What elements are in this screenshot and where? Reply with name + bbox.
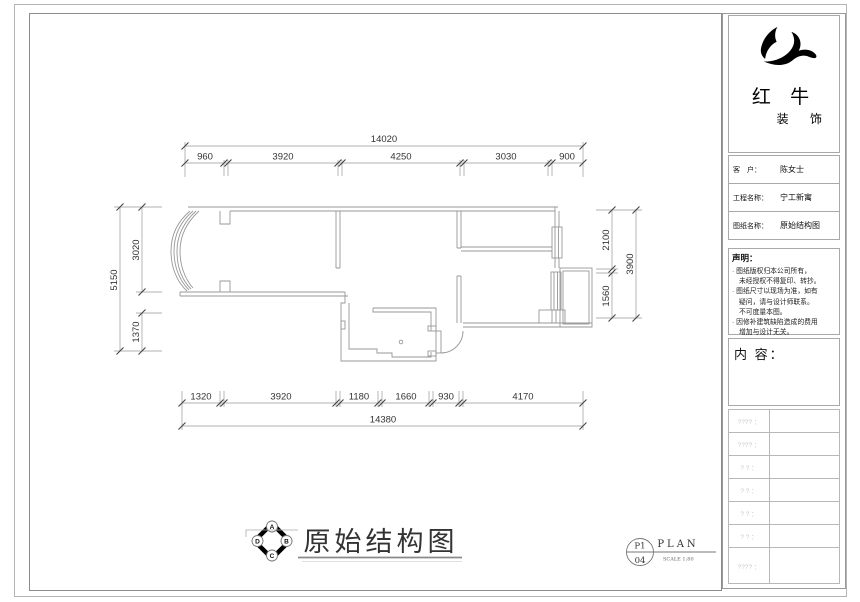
project-name-row: 工程名称： 宁工新寓 bbox=[728, 183, 840, 212]
sheet-number-bottom: 04 bbox=[635, 556, 646, 566]
signature-row: ???? ： bbox=[728, 547, 840, 584]
company-logo-section: 红 牛 装 饰 bbox=[728, 15, 840, 153]
signature-row-label: ? ? ： bbox=[729, 479, 770, 501]
signature-row: ? ? ： bbox=[728, 524, 840, 548]
dim-bottom-overall: 14380 bbox=[370, 415, 396, 426]
signature-row: ? ? ： bbox=[728, 478, 840, 502]
plan-type-label: PLAN bbox=[657, 539, 698, 550]
signature-row-label: ? ? ： bbox=[729, 525, 770, 547]
dim-left-seg: 3020 bbox=[131, 239, 142, 260]
drawing-title: 原始结构图 bbox=[304, 527, 459, 557]
signature-row-label: ???? ： bbox=[729, 548, 770, 583]
dim-bottom-seg: 1660 bbox=[395, 392, 416, 403]
dimension-labels: 14020 960 3920 4250 3030 900 1320 3920 1… bbox=[109, 134, 636, 426]
statement-line: 不可度量本图。 bbox=[732, 308, 837, 318]
dim-right-overall: 3900 bbox=[625, 253, 636, 274]
statement-line: · 因修补建筑缺陷造成的费用 bbox=[732, 318, 837, 328]
dim-bottom-seg: 3920 bbox=[270, 392, 291, 403]
dim-top-seg: 960 bbox=[197, 152, 213, 163]
dim-left-seg: 1370 bbox=[131, 321, 142, 342]
dim-bottom-seg: 1180 bbox=[349, 392, 369, 403]
scale-label: SCALE 1:80 bbox=[663, 557, 694, 563]
signature-row: ? ? ： bbox=[728, 501, 840, 525]
drawing-sheet: 14020 960 3920 4250 3030 900 1320 3920 1… bbox=[0, 0, 860, 602]
dim-top-seg: 4250 bbox=[390, 152, 411, 163]
dim-top-seg: 3920 bbox=[272, 152, 293, 163]
window-balcony bbox=[551, 272, 561, 310]
project-name-value: 宁工新寓 bbox=[775, 192, 839, 203]
dim-bottom-seg: 4170 bbox=[512, 392, 533, 403]
compass-letter-c: C bbox=[270, 553, 275, 560]
sheet-number-mark: P1 04 PLAN SCALE 1:80 bbox=[627, 539, 717, 567]
kitchen-details bbox=[341, 321, 436, 356]
dim-bottom-seg: 1320 bbox=[190, 392, 211, 403]
project-name-label: 工程名称： bbox=[729, 193, 775, 203]
signature-row: ???? ： bbox=[728, 432, 840, 456]
signature-row-label: ? ? ： bbox=[729, 502, 770, 524]
client-value: 陈女士 bbox=[775, 164, 839, 175]
signature-row-label: ???? ： bbox=[729, 433, 770, 455]
bull-logo-icon bbox=[746, 22, 822, 86]
footer: A B C D 原始结构图 P1 04 PLAN SCALE 1:80 bbox=[246, 521, 716, 566]
statement-line: · 图纸尺寸以现场为准，如有 bbox=[732, 287, 837, 297]
sheet-number-top: P1 bbox=[634, 542, 645, 552]
dim-right-seg: 1560 bbox=[601, 285, 612, 306]
company-name: 红 牛 bbox=[729, 82, 839, 109]
dim-top-seg: 3030 bbox=[495, 152, 516, 163]
bay-window bbox=[171, 211, 199, 291]
signature-row: ? ? ： bbox=[728, 455, 840, 479]
statement-heading: 声明： bbox=[732, 252, 837, 264]
drawing-name-row: 图纸名称： 原始结构图 bbox=[728, 211, 840, 240]
project-info-rows: 客 户： 陈女士 工程名称： 宁工新寓 图纸名称： 原始结构图 bbox=[728, 156, 840, 240]
window-right-upper bbox=[552, 227, 562, 258]
dim-bottom-seg: 930 bbox=[438, 392, 454, 403]
statement-line: 疑问，请与设计师联系。 bbox=[732, 298, 837, 308]
statement-section: 声明： · 图纸版权归本公司所有， 未经授权不得复印、转抄。 · 图纸尺寸以现场… bbox=[728, 248, 840, 335]
exterior-walls bbox=[180, 207, 592, 361]
dim-left-overall: 5150 bbox=[109, 269, 120, 290]
entry-door bbox=[436, 331, 463, 353]
client-label: 客 户： bbox=[729, 165, 775, 175]
client-row: 客 户： 陈女士 bbox=[728, 155, 840, 184]
signature-row-label: ???? ： bbox=[729, 410, 770, 432]
statement-line: 增加与设计无关。 bbox=[732, 328, 837, 338]
compass-symbol: A B C D bbox=[252, 521, 292, 561]
title-block-panel: 红 牛 装 饰 客 户： 陈女士 工程名称： 宁工新寓 图纸名称： 原始结构图 … bbox=[722, 13, 846, 589]
statement-line: · 图纸版权归本公司所有， bbox=[732, 267, 837, 277]
content-heading: 内 容： bbox=[729, 339, 839, 363]
company-name-sub: 装 饰 bbox=[729, 110, 839, 127]
signature-row-label: ? ? ： bbox=[729, 456, 770, 478]
interior-walls bbox=[336, 211, 556, 357]
content-section: 内 容： bbox=[728, 338, 840, 406]
dimensions: 14020 960 3920 4250 3030 900 1320 3920 1… bbox=[109, 134, 642, 430]
statement-line: 未经授权不得复印、转抄。 bbox=[732, 277, 837, 287]
drawing-name-label: 图纸名称： bbox=[729, 221, 775, 231]
dim-top-seg: 900 bbox=[559, 152, 575, 163]
floor-plan-walls bbox=[171, 207, 592, 361]
dim-right-seg: 2100 bbox=[601, 229, 612, 250]
compass-letter-d: D bbox=[255, 539, 260, 546]
signature-rows: ???? ： ???? ： ? ? ： ? ? ： ? ? ： ? ? ： ??… bbox=[728, 410, 840, 584]
signature-row: ???? ： bbox=[728, 409, 840, 433]
dim-top-overall: 14020 bbox=[371, 134, 397, 145]
drawing-name-value: 原始结构图 bbox=[775, 220, 839, 231]
compass-letter-b: B bbox=[284, 539, 289, 546]
